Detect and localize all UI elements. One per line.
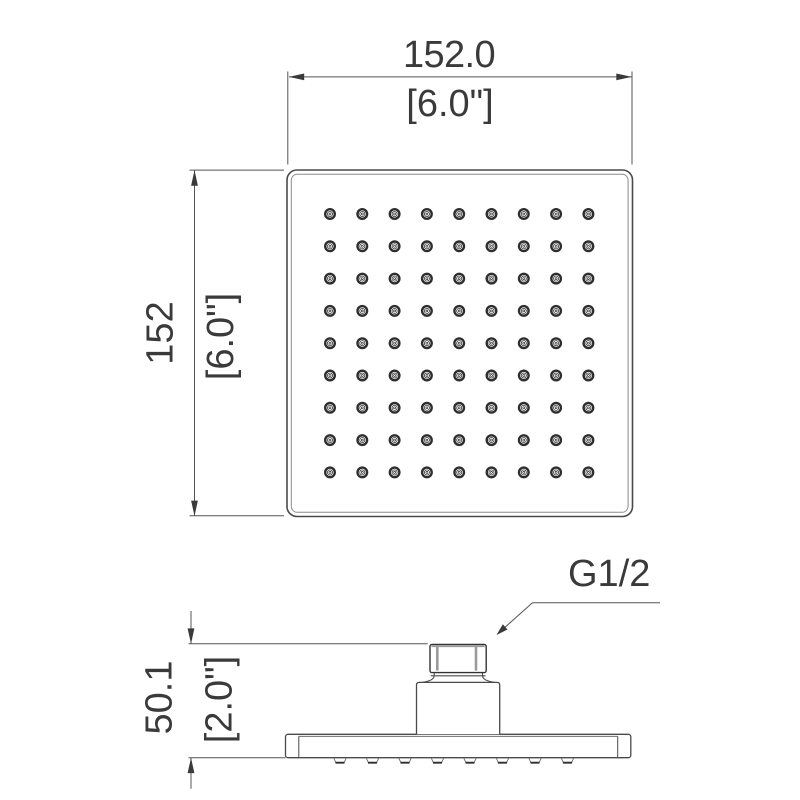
svg-text:[6.0"]: [6.0"] — [200, 293, 242, 380]
svg-text:152.0: 152.0 — [403, 34, 495, 76]
svg-text:152: 152 — [140, 301, 182, 364]
svg-text:[2.0"]: [2.0"] — [199, 656, 241, 743]
svg-text:G1/2: G1/2 — [568, 553, 650, 595]
svg-text:50.1: 50.1 — [139, 661, 181, 735]
svg-text:[6.0"]: [6.0"] — [406, 83, 493, 125]
